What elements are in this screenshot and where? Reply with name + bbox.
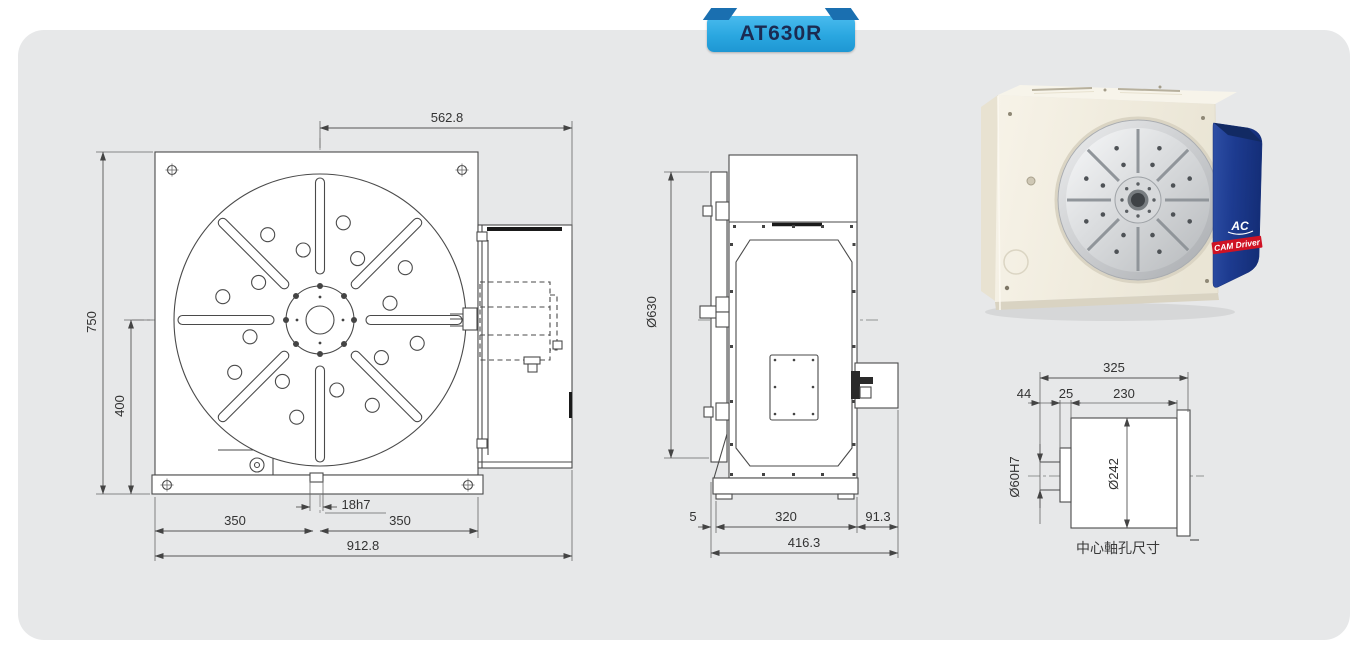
- dim-step: 25: [1059, 386, 1073, 401]
- technical-drawing-canvas: 562.8 750 400 18h7 350 350 912.8: [0, 0, 1368, 648]
- dim-hub-diameter: Ø242: [1106, 458, 1121, 490]
- dim-left-half: 350: [224, 513, 246, 528]
- front-view-drawing: 562.8 750 400 18h7 350 350 912.8: [84, 110, 572, 561]
- dim-shaft-protrusion: 44: [1017, 386, 1031, 401]
- model-badge-label: AT630R: [740, 22, 823, 46]
- detail-flange: [1177, 410, 1190, 536]
- photo-faceplate-disc: [1056, 118, 1220, 282]
- dim-top-width: 562.8: [431, 110, 464, 125]
- dim-overall-depth: 416.3: [788, 535, 821, 550]
- dim-overall-length: 325: [1103, 360, 1125, 375]
- dim-bore: Ø60H7: [1007, 456, 1022, 497]
- dim-table-diameter: Ø630: [644, 296, 659, 328]
- dim-overall-width: 912.8: [347, 538, 380, 553]
- photo-brand-logo: AC: [1230, 219, 1249, 233]
- detail-body: [1071, 418, 1177, 528]
- side-view-drawing: Ø630 5 320 91.3 416.3: [644, 155, 898, 558]
- side-body: [729, 155, 857, 478]
- dim-body-length: 230: [1113, 386, 1135, 401]
- photo-motor-cover: AC CAM Driver: [1211, 123, 1262, 288]
- dim-right-half: 350: [389, 513, 411, 528]
- side-motor-connector-box: [851, 363, 898, 408]
- dim-face-protrusion: 5: [689, 509, 696, 524]
- dim-keyway: 18h7: [342, 497, 371, 512]
- dim-motor-box: 91.3: [865, 509, 890, 524]
- bore-detail-drawing: 325 44 25 230 Ø60H7 Ø242 中心軸孔尺寸: [1007, 360, 1204, 556]
- model-badge: AT630R: [707, 16, 855, 52]
- side-base: [713, 478, 858, 494]
- keyway-slot: [310, 473, 323, 482]
- dim-center-height: 400: [112, 395, 127, 417]
- dim-height: 750: [84, 311, 99, 333]
- detail-step: [1060, 448, 1071, 502]
- dim-body-width: 320: [775, 509, 797, 524]
- bore-detail-caption: 中心軸孔尺寸: [1076, 540, 1160, 556]
- product-photo: AC CAM Driver: [981, 85, 1263, 321]
- spec-sheet-page: { "title_badge": { "label": "AT630R" }, …: [0, 0, 1368, 648]
